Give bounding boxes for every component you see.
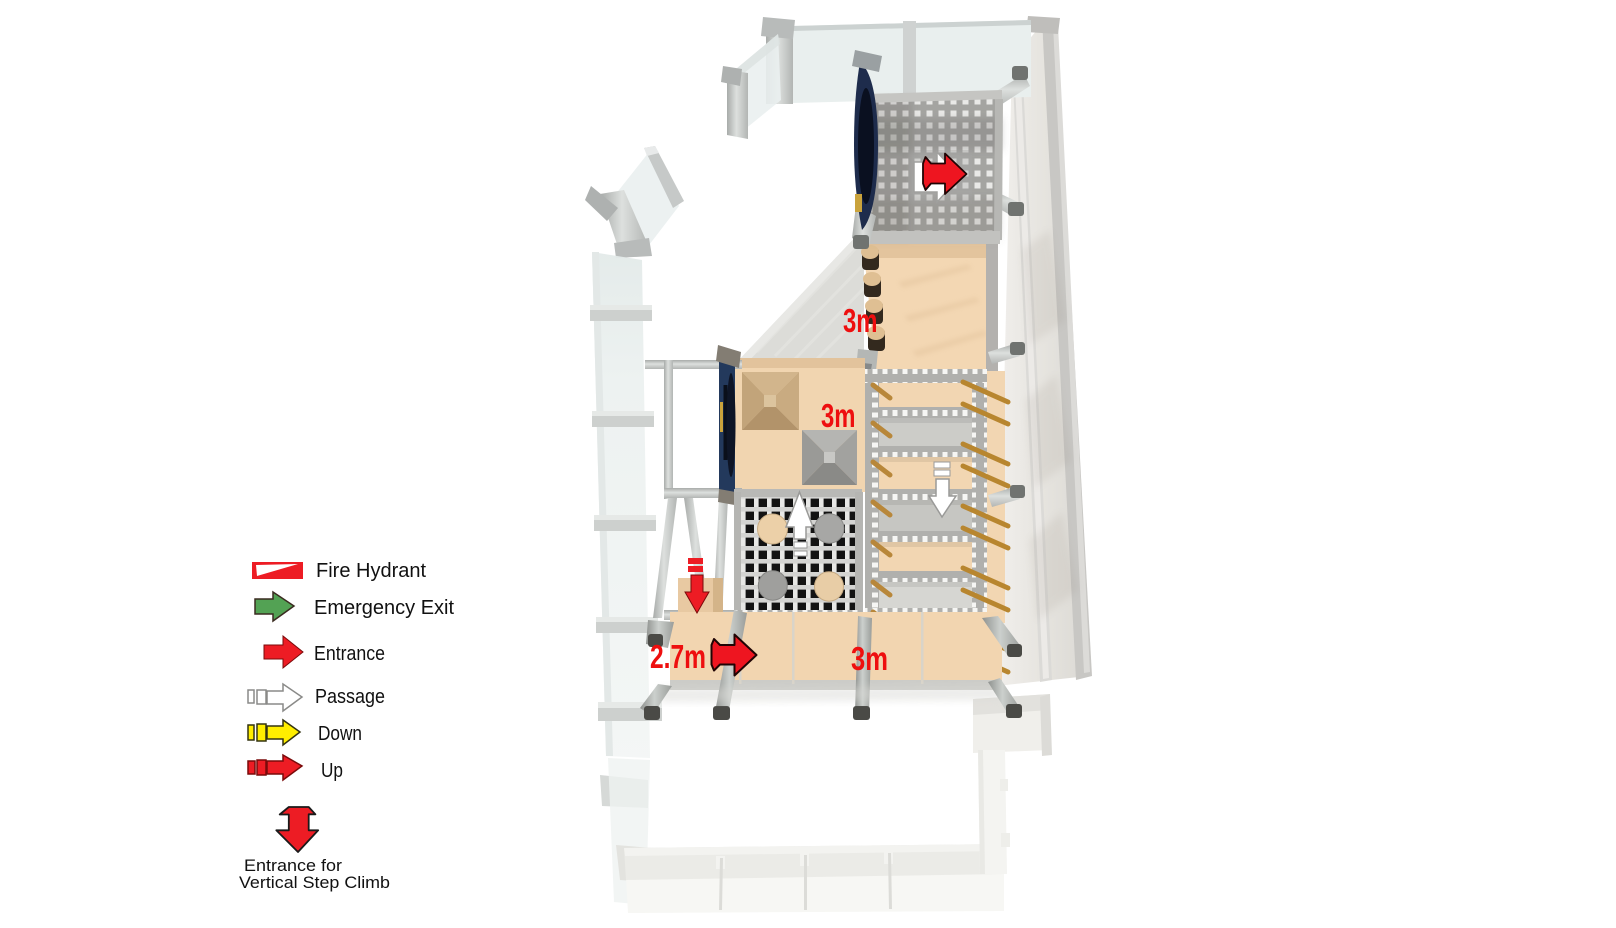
svg-text:Vertical Step Climb: Vertical Step Climb [239,874,390,892]
svg-text:Emergency Exit: Emergency Exit [314,597,454,619]
svg-text:2.7m: 2.7m [650,638,706,675]
svg-text:Entrance for: Entrance for [244,857,343,875]
svg-text:Entrance: Entrance [314,643,385,665]
svg-text:Up: Up [321,760,343,782]
svg-text:3m: 3m [843,302,878,339]
svg-text:Fire Hydrant: Fire Hydrant [316,560,426,582]
svg-text:3m: 3m [851,640,888,677]
svg-text:Passage: Passage [315,686,385,708]
svg-text:3m: 3m [821,397,856,434]
svg-text:Down: Down [318,723,362,745]
